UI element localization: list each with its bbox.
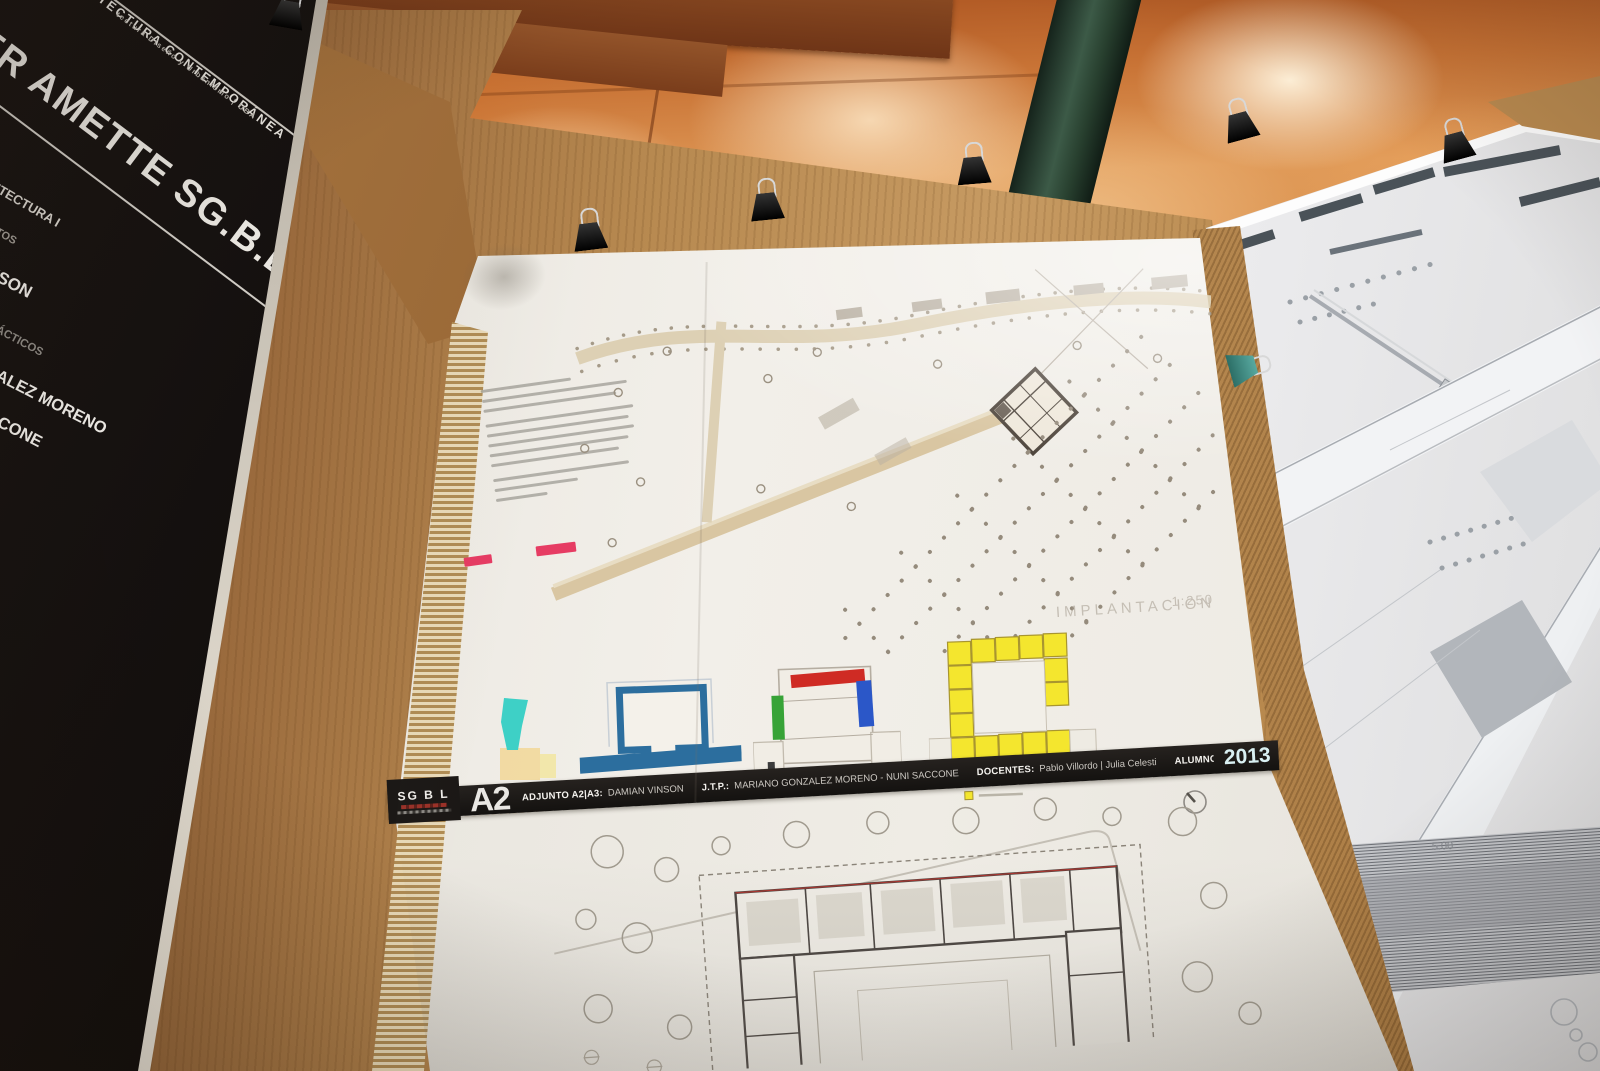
massing-diagram-blue [576, 642, 743, 780]
binder-clip [569, 206, 608, 254]
svg-text:1:250: 1:250 [1171, 591, 1214, 609]
sheet-code: A2 [459, 779, 523, 820]
clip-body [748, 191, 785, 221]
green-bar [771, 695, 785, 739]
sgbl-logo-text: SG B L [397, 786, 450, 803]
panel-title: ER AMETTE SG.B.L [0, 20, 301, 287]
logo-grayline [397, 808, 451, 814]
clip-body [1225, 348, 1260, 388]
alumnos-label: ALUMNOS: [1174, 753, 1214, 766]
alumnos-group: ALUMNOS: Acuña Victoria | Rocca Fiorella [1174, 753, 1214, 766]
courtyard [972, 661, 1046, 733]
shrub-symbols [583, 1045, 663, 1071]
dimension-label: 5.00 [1432, 840, 1454, 853]
clip-body [955, 156, 991, 186]
clip-body [1221, 109, 1261, 144]
diagonal-road [549, 402, 1044, 595]
jtp-names: MARIANO GONZALEZ MORENO - NUNI SACCONE [734, 768, 959, 792]
docentes-group: DOCENTES: Pablo Villordo | Julia Celesti [976, 757, 1157, 778]
jtp-label: J.T.P.: [701, 780, 729, 793]
clip-body [269, 0, 307, 31]
panel-item-adjuntos: NTOS [0, 222, 19, 247]
blue-bar [856, 680, 874, 727]
panel-subheading: tectura Diseño y Urbanismo | UBA [115, 10, 259, 121]
right-wing [1066, 928, 1129, 1050]
sgbl-logo: SG B L [387, 776, 461, 824]
docentes-names: Pablo Villordo | Julia Celesti [1039, 757, 1157, 775]
site-plan-drawing: IMPLANTACION 1:250 [515, 247, 1220, 665]
year-label: 2013 [1213, 743, 1279, 771]
clip-body [571, 221, 608, 252]
panel-item-arquitectura: UITECTURA I [0, 176, 63, 230]
city-block-dark [1430, 600, 1572, 738]
adjunto-group: ADJUNTO A2|A3: DAMIAN VINSON [522, 783, 684, 803]
clip-body [1437, 129, 1477, 164]
tree-circles [578, 334, 1166, 547]
panel-item-saccone: CCONE [0, 408, 45, 452]
yellow-block [540, 754, 556, 778]
adjunto-name: DAMIAN VINSON [607, 783, 684, 798]
cone-diagram [496, 696, 560, 788]
left-wing [740, 955, 802, 1071]
building-bars-light [1330, 232, 1422, 252]
binder-clip [747, 176, 785, 223]
panel-item-practicos: RÁCTICOS [0, 320, 45, 359]
tan-block [500, 748, 540, 780]
cyan-cone [501, 698, 528, 750]
plan-title: IMPLANTACION 1:250 [1055, 591, 1215, 621]
binder-clip [954, 141, 992, 188]
main-building-plan [992, 369, 1077, 454]
floor-plan-drawing [545, 772, 1281, 1071]
panel-item-vinson: NSON [0, 262, 35, 303]
adjunto-label: ADJUNTO A2|A3: [522, 787, 603, 803]
docentes-label: DOCENTES: [976, 763, 1034, 777]
exhibition-photo: 5.00 [0, 0, 1600, 1071]
jtp-group: J.T.P.: MARIANO GONZALEZ MORENO - NUNI S… [701, 768, 959, 793]
